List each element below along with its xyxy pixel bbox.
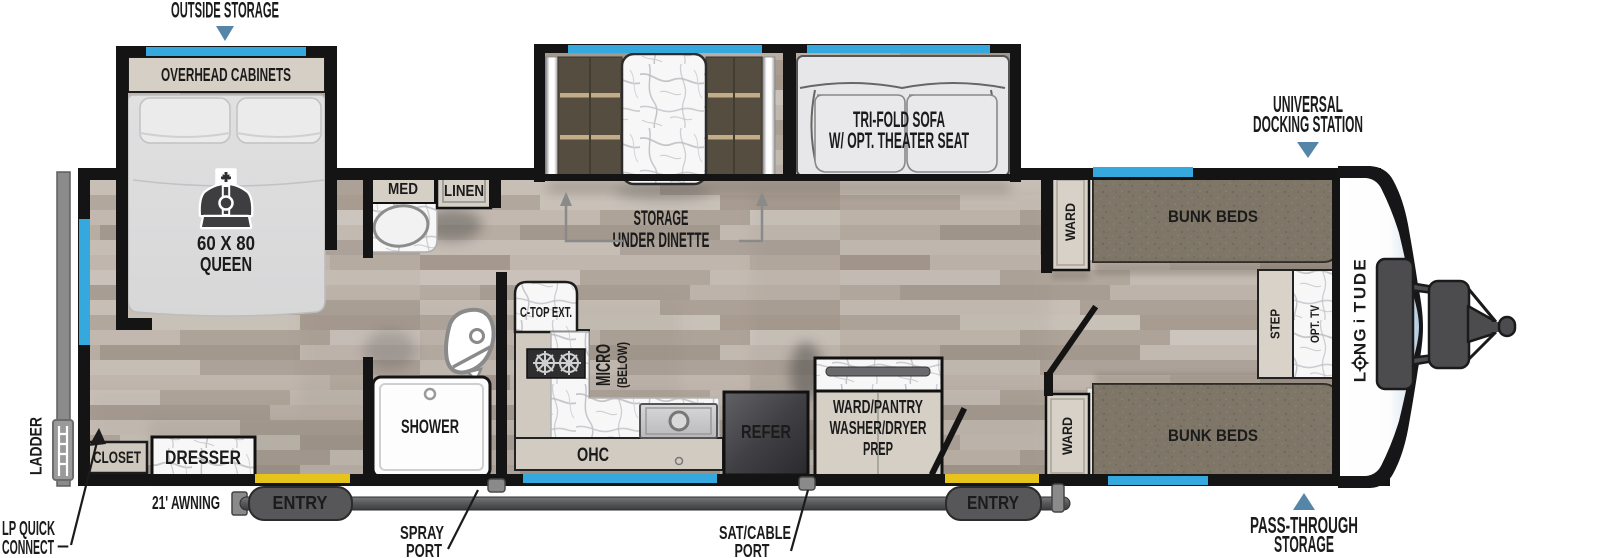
svg-text:DOCKING STATION: DOCKING STATION [1253, 111, 1363, 137]
svg-text:MED: MED [388, 181, 418, 198]
svg-text:CLOSET: CLOSET [93, 448, 141, 467]
svg-text:OPT. TV: OPT. TV [1308, 305, 1322, 343]
svg-text:BUNK BEDS: BUNK BEDS [1168, 207, 1258, 226]
svg-text:PORT: PORT [735, 541, 770, 558]
svg-text:60 X 80: 60 X 80 [197, 233, 255, 255]
svg-text:T: T [1351, 301, 1370, 312]
svg-text:SHOWER: SHOWER [401, 417, 459, 438]
svg-text:UNDER DINETTE: UNDER DINETTE [613, 229, 710, 252]
svg-text:QUEEN: QUEEN [200, 254, 252, 276]
svg-text:WARD/PANTRY: WARD/PANTRY [833, 397, 923, 417]
svg-text:LINEN: LINEN [444, 183, 484, 200]
svg-text:ENTRY: ENTRY [967, 493, 1019, 513]
svg-text:21' AWNING: 21' AWNING [152, 493, 220, 513]
svg-text:PORT: PORT [406, 541, 442, 558]
svg-text:(BELOW): (BELOW) [614, 342, 630, 388]
svg-text:G: G [1351, 328, 1370, 341]
svg-text:CONNECT: CONNECT [2, 537, 54, 558]
svg-text:WARD: WARD [1059, 417, 1075, 455]
svg-text:STORAGE: STORAGE [1274, 531, 1334, 557]
svg-text:WASHER/DRYER: WASHER/DRYER [830, 418, 927, 438]
svg-text:REFER: REFER [741, 422, 791, 442]
svg-text:OUTSIDE STORAGE: OUTSIDE STORAGE [171, 0, 279, 23]
svg-text:–: – [57, 535, 69, 557]
svg-text:E: E [1351, 259, 1370, 270]
svg-text:i: i [1352, 319, 1369, 323]
svg-text:L: L [1351, 372, 1370, 382]
svg-text:STEP: STEP [1268, 309, 1283, 339]
svg-text:SPRAY: SPRAY [400, 523, 444, 543]
svg-text:U: U [1351, 287, 1370, 299]
svg-text:C-TOP EXT.: C-TOP EXT. [520, 304, 572, 321]
svg-text:LADDER: LADDER [27, 417, 46, 475]
svg-text:OVERHEAD CABINETS: OVERHEAD CABINETS [161, 65, 291, 85]
svg-text:OHC: OHC [577, 445, 609, 466]
svg-text:STORAGE: STORAGE [634, 207, 689, 230]
svg-text:W/ OPT. THEATER SEAT: W/ OPT. THEATER SEAT [829, 128, 969, 153]
svg-text:DRESSER: DRESSER [165, 448, 241, 469]
svg-text:PREP: PREP [863, 439, 893, 459]
svg-text:SAT/CABLE: SAT/CABLE [719, 523, 791, 543]
svg-text:ENTRY: ENTRY [273, 493, 328, 513]
svg-text:D: D [1351, 273, 1370, 285]
svg-text:MICRO: MICRO [593, 344, 615, 386]
svg-text:WARD: WARD [1062, 203, 1078, 241]
svg-text:N: N [1351, 343, 1370, 355]
svg-text:BUNK BEDS: BUNK BEDS [1168, 426, 1258, 445]
